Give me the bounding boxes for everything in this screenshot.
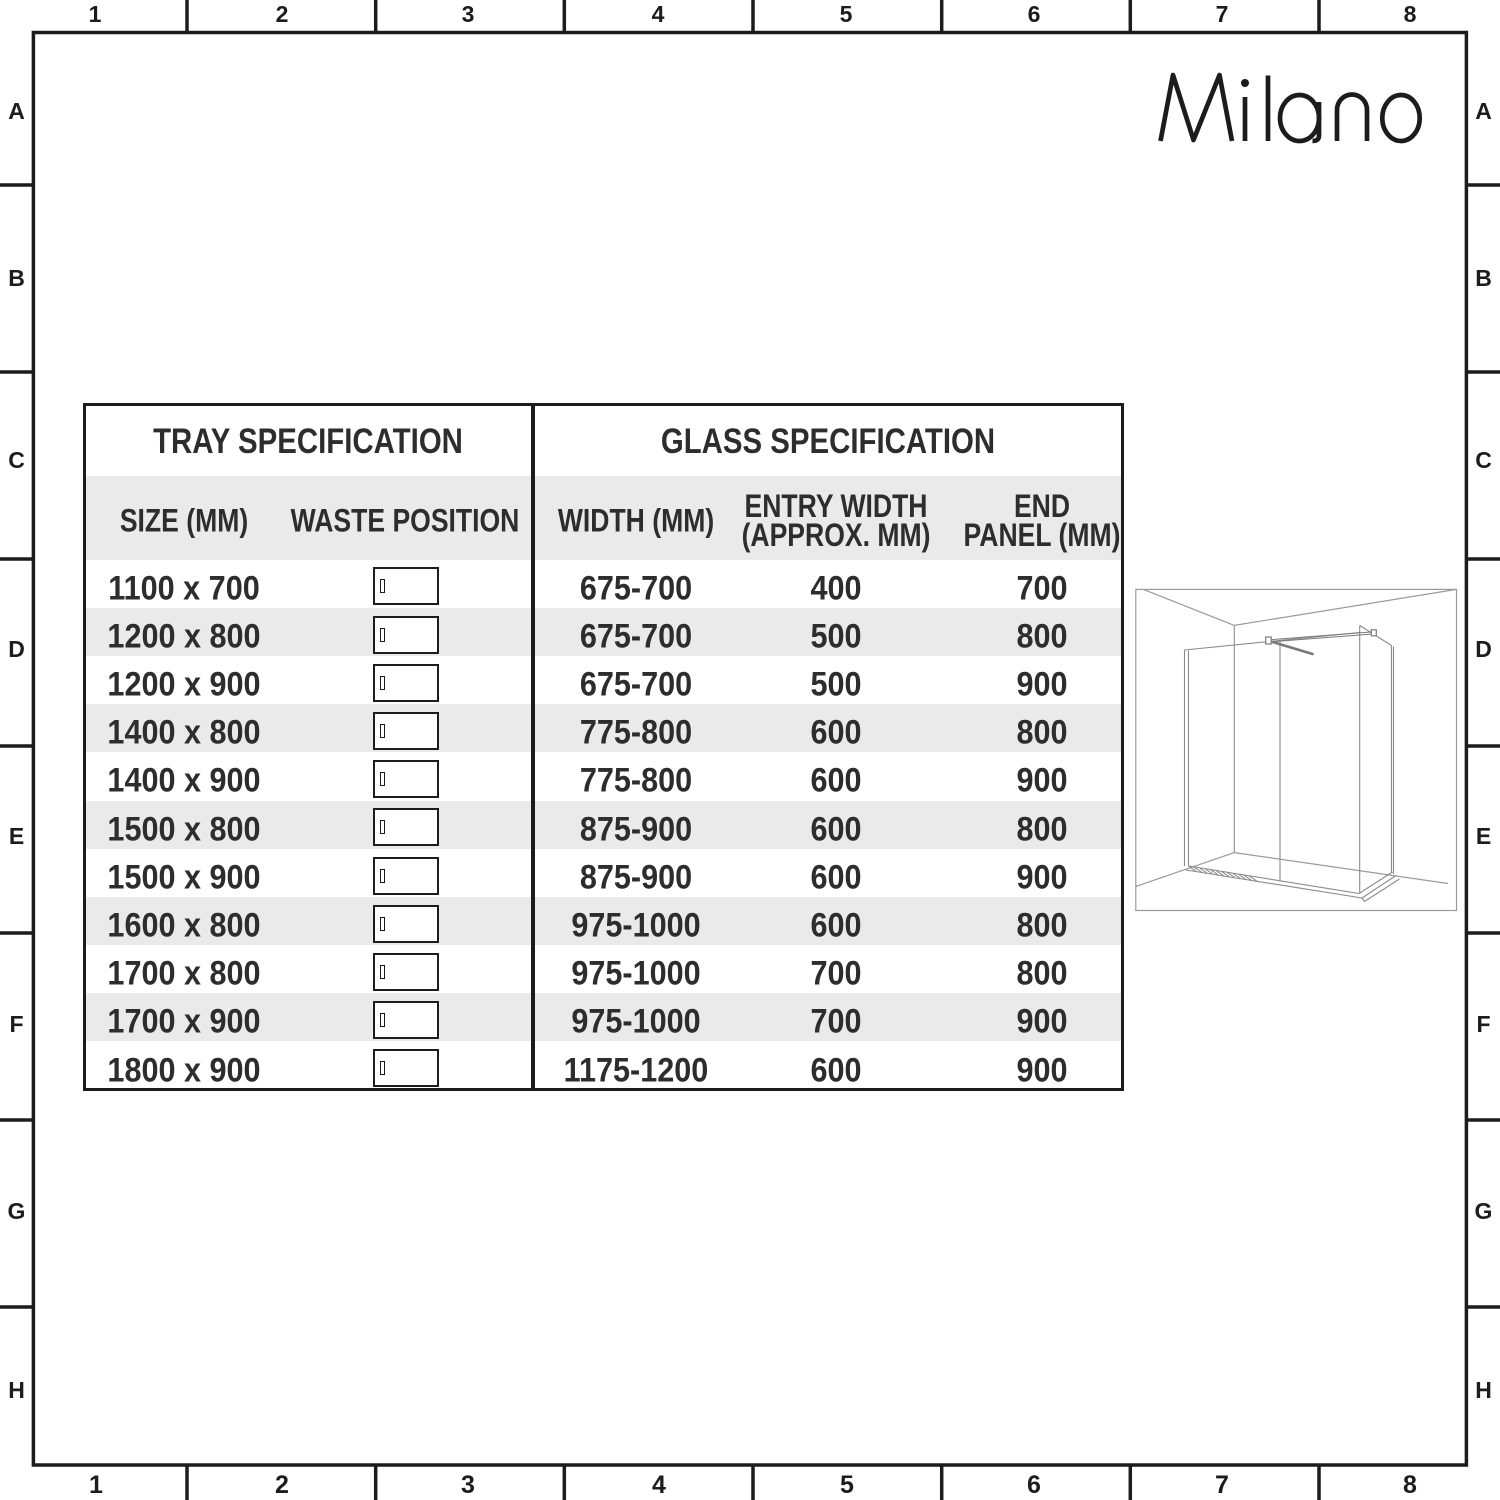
svg-text:E: E xyxy=(9,823,24,849)
svg-text:5: 5 xyxy=(840,1471,854,1499)
svg-text:D: D xyxy=(1475,636,1492,662)
svg-text:G: G xyxy=(1475,1198,1493,1224)
svg-text:7: 7 xyxy=(1216,1,1229,27)
svg-text:G: G xyxy=(8,1198,26,1224)
svg-text:1: 1 xyxy=(89,1,102,27)
svg-text:H: H xyxy=(8,1377,25,1403)
svg-text:F: F xyxy=(9,1011,23,1037)
svg-text:2: 2 xyxy=(276,1,289,27)
svg-text:4: 4 xyxy=(652,1471,666,1499)
svg-text:F: F xyxy=(1476,1011,1490,1037)
svg-text:B: B xyxy=(8,265,25,291)
svg-text:3: 3 xyxy=(462,1,475,27)
svg-text:C: C xyxy=(1475,447,1492,473)
svg-text:A: A xyxy=(8,98,25,124)
svg-text:2: 2 xyxy=(275,1471,289,1499)
svg-text:6: 6 xyxy=(1028,1,1041,27)
svg-text:B: B xyxy=(1475,265,1492,291)
svg-text:E: E xyxy=(1476,823,1491,849)
svg-text:4: 4 xyxy=(652,1,665,27)
svg-text:C: C xyxy=(8,447,25,473)
svg-text:8: 8 xyxy=(1403,1471,1417,1499)
svg-text:6: 6 xyxy=(1027,1471,1041,1499)
svg-text:8: 8 xyxy=(1404,1,1417,27)
svg-text:A: A xyxy=(1475,98,1492,124)
svg-text:3: 3 xyxy=(461,1471,475,1499)
svg-text:7: 7 xyxy=(1215,1471,1229,1499)
svg-text:D: D xyxy=(8,636,25,662)
svg-text:1: 1 xyxy=(89,1471,103,1499)
svg-text:H: H xyxy=(1475,1377,1492,1403)
svg-text:5: 5 xyxy=(840,1,853,27)
